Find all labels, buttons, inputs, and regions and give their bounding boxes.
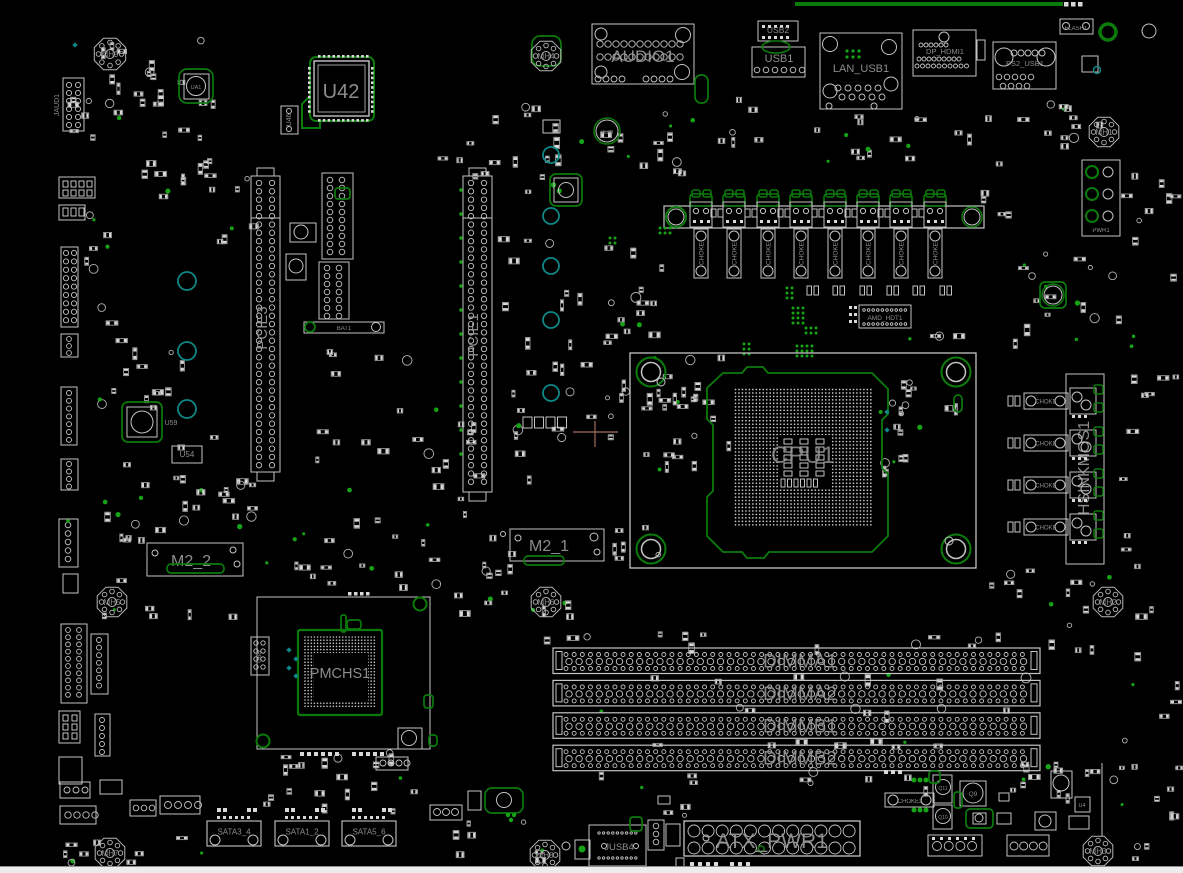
svg-text:CHOKE: CHOKE (799, 241, 806, 265)
svg-text:CHOKE: CHOKE (833, 241, 840, 265)
top-green-trace (795, 2, 1083, 7)
cyan-vias (72, 42, 559, 678)
u42-chip[interactable]: U42 (302, 55, 374, 128)
jusb4-header[interactable]: JUSB4 (562, 817, 646, 866)
svg-text:MH3: MH3 (1090, 847, 1107, 856)
pwr1-connector[interactable]: PWR1 (1082, 160, 1120, 236)
svg-text:USB2: USB2 (767, 25, 789, 35)
audio1-connector[interactable]: AUDIO1 (592, 24, 708, 103)
amd-hdt1-connector[interactable]: AMD_HDT1 (849, 305, 911, 328)
u46-chip[interactable]: U46 (281, 106, 298, 134)
cpu-socket[interactable]: CPU1 (630, 353, 976, 568)
bottom-right-components[interactable]: CHOKE2Q11Q10Q9U4 (884, 763, 1102, 856)
dp-hdmi1-connector[interactable]: DP_HDMI1 (913, 30, 985, 76)
svg-text:CHOKE: CHOKE (732, 241, 739, 265)
svg-text:PCIE3: PCIE3 (254, 306, 271, 349)
board-canvas[interactable]: MH9MH4MH1MH5MH6MH2MH7MH8MH3AUDIO1USB2USB… (0, 0, 1183, 871)
svg-text:BAT1: BAT1 (337, 326, 352, 332)
svg-text:DIMMA1: DIMMA1 (763, 652, 837, 673)
u59-chip[interactable]: U59 (122, 402, 178, 442)
u68-chip[interactable]: U68 (251, 637, 269, 675)
ua1-chip[interactable]: UA1 (179, 69, 213, 103)
svg-text:CHOKE: CHOKE (899, 241, 906, 265)
usb1-connector[interactable]: USB1 (752, 41, 805, 77)
atx-pwr1-connector[interactable]: ATX_PWR1 (666, 821, 860, 866)
ps2-usb1-connector[interactable]: PS2_USB1 (993, 42, 1056, 89)
passives (64, 37, 1183, 866)
svg-text:UL2D: UL2D (601, 130, 614, 136)
svg-text:LAN_USB1: LAN_USB1 (833, 63, 889, 75)
ul2d-component[interactable]: UL2D (594, 118, 620, 144)
mounting-holes[interactable]: MH9MH4MH1MH5MH6MH2MH7MH8MH3 (94, 36, 1123, 866)
horizontal-scrollbar[interactable] (0, 866, 1183, 873)
svg-text:CHOKE: CHOKE (1035, 400, 1056, 406)
svg-text:DIMMB1: DIMMB1 (763, 716, 837, 737)
svg-text:PCIE1: PCIE1 (465, 313, 482, 356)
svg-text:USB1: USB1 (765, 53, 794, 65)
svg-text:AMD_HDT1: AMD_HDT1 (867, 315, 902, 322)
svg-text:CPU1: CPU1 (771, 442, 835, 469)
svg-text:MH6: MH6 (538, 598, 555, 607)
lan-usb1-connector[interactable]: LAN_USB1 (820, 33, 902, 109)
boardview-window: MH9MH4MH1MH5MH6MH2MH7MH8MH3AUDIO1USB2USB… (0, 0, 1183, 873)
dimm-slots[interactable]: DIMMA1DIMMA2DIMMB1DIMMB2 (553, 648, 1040, 771)
svg-text:FLASH1: FLASH1 (1065, 26, 1088, 32)
svg-text:MH7: MH7 (102, 849, 119, 858)
svg-text:AUDIO1: AUDIO1 (611, 47, 674, 66)
svg-text:JAUD1: JAUD1 (54, 94, 61, 116)
pmchs1-chipset[interactable]: PMCHS1 (257, 592, 438, 756)
svg-text:PS2_USB1: PS2_USB1 (1006, 59, 1044, 68)
svg-text:DP_HDMI1: DP_HDMI1 (926, 47, 964, 56)
svg-text:MH4: MH4 (538, 52, 555, 61)
sata-connectors[interactable]: SATA3_4SATA1_2SATA5_6 (207, 808, 396, 846)
m2-2-slot[interactable]: M2_2 (147, 543, 243, 576)
pcie1-slot[interactable]: PCIE1 (459, 168, 492, 501)
flash1-header[interactable]: FLASH1 (1060, 19, 1156, 74)
m2-1-slot[interactable]: M2_1 (501, 529, 605, 565)
svg-text:CHOKE: CHOKE (1035, 484, 1056, 490)
svg-text:MH1: MH1 (1096, 128, 1113, 137)
svg-text:DIMMB2: DIMMB2 (763, 749, 837, 770)
svg-text:MH5: MH5 (104, 598, 121, 607)
svg-text:PMCHS1: PMCHS1 (310, 666, 370, 682)
pcie3-slot[interactable]: PCIE3 (251, 168, 280, 481)
header-between-pcie[interactable] (286, 173, 353, 319)
usb2-connector[interactable]: USB2 (758, 21, 798, 41)
svg-text:MH2: MH2 (1100, 598, 1117, 607)
svg-text:MH9: MH9 (102, 50, 119, 59)
svg-text:CHOKE: CHOKE (866, 241, 873, 265)
crosshair-cursor (573, 421, 618, 447)
svg-text:CHOKE: CHOKE (1035, 526, 1056, 532)
svg-text:MH8: MH8 (537, 851, 554, 860)
svg-text:CHOKE: CHOKE (1035, 442, 1056, 448)
bat1-battery[interactable]: BAT1 (304, 322, 384, 333)
svg-text:DIMMA2: DIMMA2 (763, 684, 837, 705)
svg-text:CHOKE: CHOKE (699, 241, 706, 265)
svg-text:U46: U46 (286, 113, 293, 126)
green-vias (609, 227, 818, 358)
svg-text:PWR1: PWR1 (1092, 228, 1110, 234)
svg-text:U42: U42 (323, 81, 360, 103)
hsinkmos1-heatsink[interactable]: HSINKMOS1CHOKECHOKECHOKECHOKE (1008, 374, 1104, 564)
vrm-section[interactable]: CHOKECHOKECHOKECHOKECHOKECHOKECHOKECHOKE (664, 190, 984, 295)
svg-text:CHOKE: CHOKE (933, 241, 940, 265)
u54-chip[interactable]: U54 (172, 446, 202, 463)
svg-text:UA1: UA1 (191, 85, 202, 91)
svg-text:CHOKE: CHOKE (766, 241, 773, 265)
